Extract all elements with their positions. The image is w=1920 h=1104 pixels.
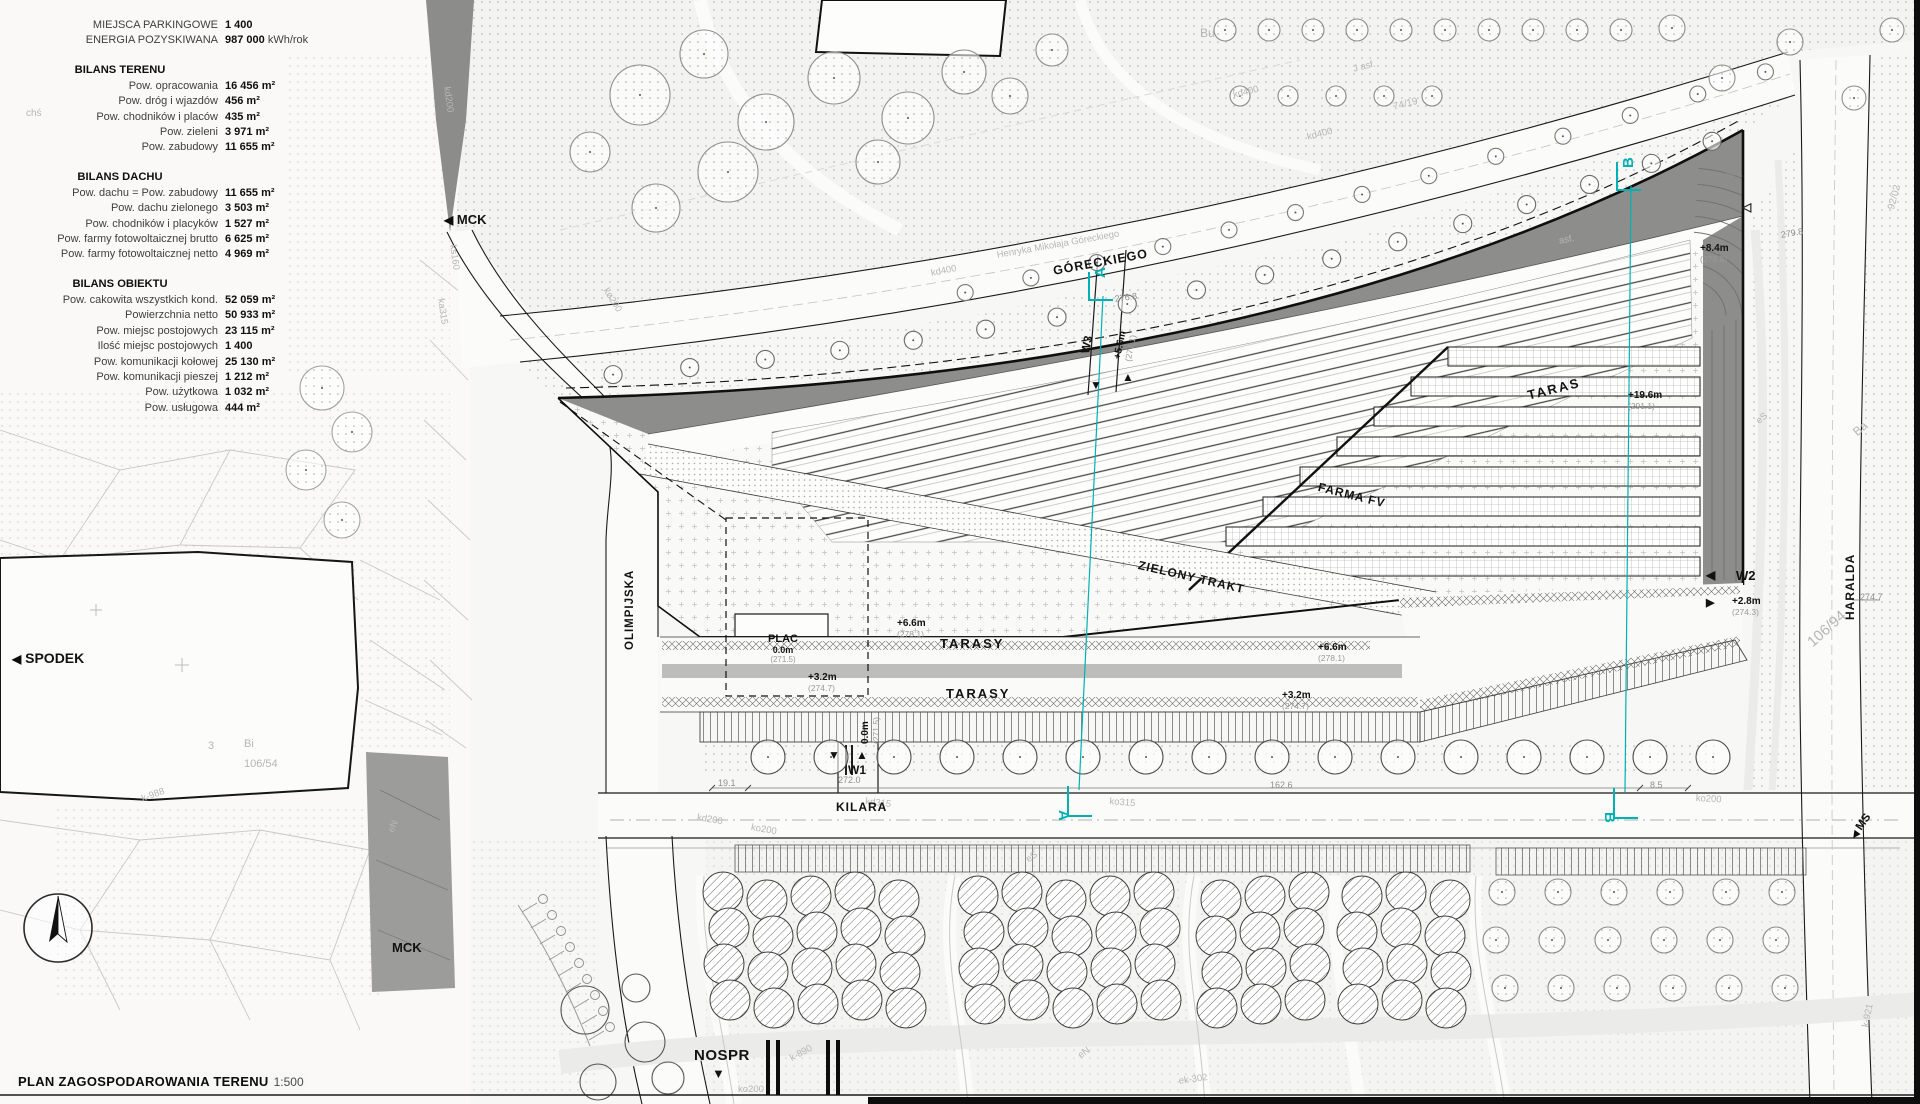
stats-row: MIEJSCA PARKINGOWE1 400 xyxy=(22,18,302,33)
stats-row: Pow. komunikacji kołowej25 130 m² xyxy=(22,355,302,370)
section-mark-a-top: A xyxy=(1092,267,1109,278)
zone-tarasy-lower: TARASY xyxy=(946,686,1010,701)
elevation-84: +8.4m(279.9) xyxy=(1700,243,1729,265)
drawing-title: PLAN ZAGOSPODAROWANIA TERENU1:500 xyxy=(14,1072,308,1092)
stats-row: Pow. zabudowy11 655 m² xyxy=(22,140,302,155)
elevation-28: +2.8m(274.3) xyxy=(1732,596,1761,618)
stats-row: Pow. dachu zielonego3 503 m² xyxy=(22,201,302,216)
stats-row: Pow. farmy fotowoltaicznej netto4 969 m² xyxy=(22,247,302,262)
street-haralda: HARALDA xyxy=(1843,554,1857,620)
stats-row: Pow. chodników i placów435 m² xyxy=(22,110,302,125)
compass-icon xyxy=(24,894,92,962)
stats-row: Pow. farmy fotowoltaicznej brutto6 625 m… xyxy=(22,232,302,247)
site-plan-drawing: kd400kd40074/19J asf.kd400asf.Buchśkd200… xyxy=(0,0,1920,1104)
landmark-mck-bottom: MCK xyxy=(392,940,422,955)
stats-row: Pow. cakowita wszystkich kond.52 059 m² xyxy=(22,293,302,308)
spodek-plot xyxy=(0,552,358,800)
stats-row: Pow. usługowa444 m² xyxy=(22,401,302,416)
elevation-w1: 0.0m(271.5) xyxy=(860,717,882,744)
stats-top-rows: MIEJSCA PARKINGOWE1 400ENERGIA POZYSKIWA… xyxy=(22,18,302,49)
stats-row: Pow. komunikacji pieszej1 212 m² xyxy=(22,370,302,385)
stats-sections: BILANS TERENUPow. opracowania16 456 m²Po… xyxy=(22,63,302,416)
title-scale: 1:500 xyxy=(274,1075,304,1089)
existing-building-north xyxy=(816,0,1006,56)
stats-row: Pow. miejsc postojowych23 115 m² xyxy=(22,324,302,339)
stats-row: Powierzchnia netto50 933 m² xyxy=(22,308,302,323)
elevation-66-left: +6.6m(278.1) xyxy=(897,618,926,640)
stats-row: Pow. dróg i wjazdów456 m² xyxy=(22,94,302,109)
section-mark-b-top: B xyxy=(1620,157,1637,168)
arrow-left-icon: ◀ xyxy=(12,652,21,666)
elevation-196: +19.6m(291.1) xyxy=(1628,390,1662,412)
arrow-right-icon: ▶ xyxy=(1706,596,1714,609)
zone-plac: PLAC 0.0m (271.5) xyxy=(744,634,822,664)
landmark-mck-top: ◀ MCK xyxy=(444,212,486,227)
stats-row: Pow. zieleni3 971 m² xyxy=(22,125,302,140)
stats-row: Ilość miejsc postojowych1 400 xyxy=(22,339,302,354)
elevation-66-right: +6.6m(278.1) xyxy=(1318,642,1347,664)
arrow-down-icon: ▼ xyxy=(1090,378,1102,392)
arrow-up-icon: ▲ xyxy=(1122,370,1134,384)
stats-row: ENERGIA POZYSKIWANA987 000 kWh/rok xyxy=(22,33,302,48)
landmark-spodek: ◀ SPODEK xyxy=(12,650,84,666)
south-parking-strips xyxy=(735,845,1806,875)
title-text: PLAN ZAGOSPODAROWANIA TERENU xyxy=(18,1074,269,1089)
crossing-w1: W1 xyxy=(848,763,866,777)
section-mark-a-bottom: A xyxy=(1055,810,1072,821)
arrow-down-icon: ▼ xyxy=(828,748,840,762)
zone-tarasy-upper: TARASY xyxy=(940,636,1004,651)
stats-row: Pow. dachu = Pow. zabudowy11 655 m² xyxy=(22,186,302,201)
stats-section-title: BILANS TERENU xyxy=(22,63,218,78)
street-kilara: KILARA xyxy=(836,800,887,814)
stats-row: Pow. opracowania16 456 m² xyxy=(22,79,302,94)
stats-row: Pow. chodników i placyków1 527 m² xyxy=(22,217,302,232)
arrow-up-icon: ▲ xyxy=(856,748,868,762)
stats-row: Pow. użytkowa1 032 m² xyxy=(22,385,302,400)
arrow-left-open-icon: ◁ xyxy=(1742,200,1751,214)
crossing-w2: W2 xyxy=(1736,568,1756,583)
arrow-left-icon: ◀ xyxy=(1706,568,1715,582)
stats-section-title: BILANS OBIEKTU xyxy=(22,277,218,292)
site-statistics-panel: MIEJSCA PARKINGOWE1 400ENERGIA POZYSKIWA… xyxy=(22,18,302,416)
landmark-nospr: NOSPR xyxy=(694,1047,750,1064)
elevation-32-left: +3.2m(274.7) xyxy=(808,672,837,694)
stats-section-title: BILANS DACHU xyxy=(22,170,218,185)
arrow-left-icon: ◀ xyxy=(444,213,453,227)
section-mark-b-bottom: B xyxy=(1601,812,1618,823)
arrow-down-icon: ▼ xyxy=(712,1066,725,1081)
elevation-32-right: +3.2m(274.7) xyxy=(1282,690,1311,712)
street-olimpijska: OLIMPIJSKA xyxy=(624,570,636,650)
